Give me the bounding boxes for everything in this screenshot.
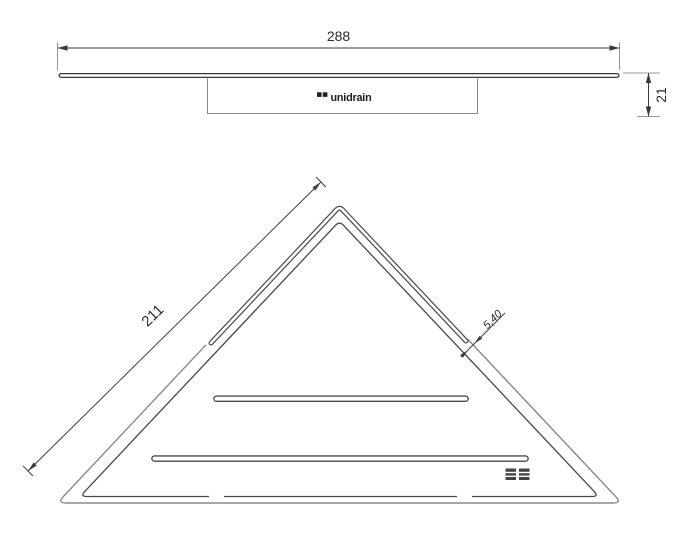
dim-288: 288 (58, 28, 620, 70)
stripe (519, 476, 530, 477)
dim-21-label: 21 (653, 87, 669, 103)
stripe (506, 472, 517, 473)
edge-slot-inner (211, 208, 466, 343)
outer-frame-edge (61, 340, 619, 504)
dim-211: 211 (23, 177, 326, 476)
dim-288-arrow-left (58, 45, 68, 50)
dim-21: 21 (623, 73, 669, 117)
striped-square-icon (506, 469, 517, 481)
side-profile-view: 288 unidrain 21 (58, 28, 670, 117)
stripe (519, 472, 530, 473)
unidrain-logo: unidrain (317, 92, 372, 104)
striped-square-icon (519, 469, 530, 481)
stripe (506, 476, 517, 477)
dim-540: 5,40 (460, 307, 505, 357)
edge-slot-outline (211, 208, 466, 343)
logo-square-icon (317, 92, 322, 97)
edge-slot-band (211, 208, 466, 343)
dim-211-line (28, 182, 321, 471)
dim-21-arrow-bottom (646, 107, 651, 117)
technical-drawing-sheet: 288 unidrain 21 (0, 0, 699, 543)
dim-288-label: 288 (327, 28, 351, 44)
logo-square-icon (323, 92, 328, 97)
unidrain-logo-text: unidrain (331, 92, 372, 104)
dim-288-arrow-right (610, 45, 620, 50)
triangular-top-view: 211 5,40 (23, 177, 618, 503)
dim-21-arrow-top (646, 73, 651, 83)
inner-line-gap (209, 493, 224, 499)
dim-211-label: 211 (138, 301, 167, 330)
grid-logo-icon (506, 469, 530, 481)
dim-540-label: 5,40 (481, 307, 505, 331)
inner-line-gap (457, 493, 472, 499)
drawing-canvas: 288 unidrain 21 (0, 0, 699, 543)
